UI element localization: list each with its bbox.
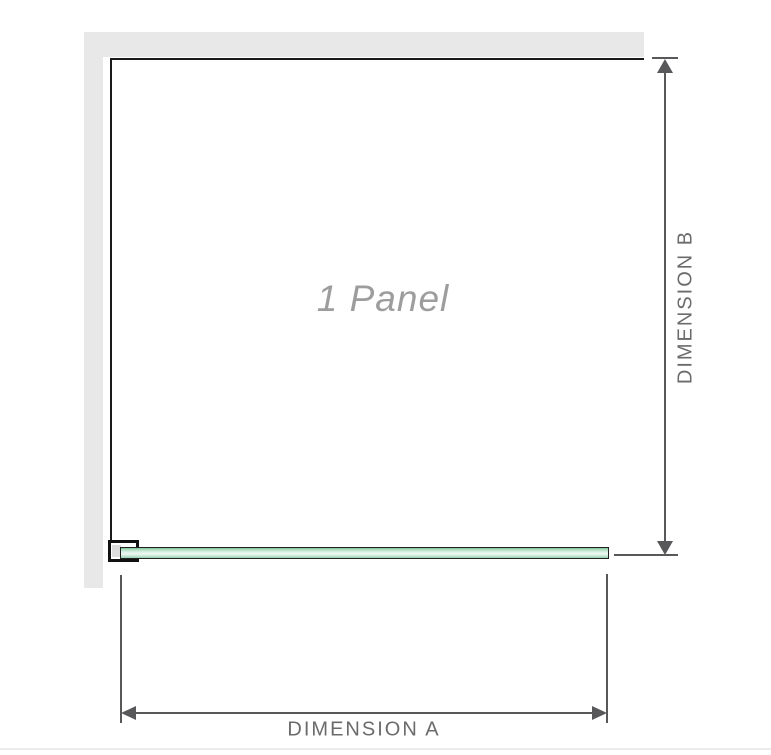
panel-outline-left bbox=[110, 58, 112, 542]
dimension-a-extension-left bbox=[120, 575, 122, 723]
panel-diagram: 1 Panel DIMENSION B DIMENSION A bbox=[0, 0, 771, 755]
dimension-b-line bbox=[664, 70, 667, 543]
dimension-a-label: DIMENSION A bbox=[287, 719, 440, 742]
arrow-right-icon bbox=[592, 706, 607, 720]
arrow-up-icon bbox=[657, 59, 673, 73]
panel-outline-top bbox=[110, 58, 644, 60]
bottom-divider bbox=[0, 748, 771, 750]
arrow-left-icon bbox=[121, 706, 136, 720]
dimension-b-label: DIMENSION B bbox=[675, 230, 698, 384]
glass-panel-plan-view bbox=[120, 547, 609, 559]
wall-band-top bbox=[84, 32, 644, 57]
panel-count-label: 1 Panel bbox=[317, 278, 450, 320]
arrow-down-icon bbox=[657, 541, 673, 555]
dimension-a-extension-right bbox=[606, 574, 608, 723]
dimension-a-line bbox=[131, 712, 598, 714]
wall-band-left bbox=[84, 32, 103, 588]
